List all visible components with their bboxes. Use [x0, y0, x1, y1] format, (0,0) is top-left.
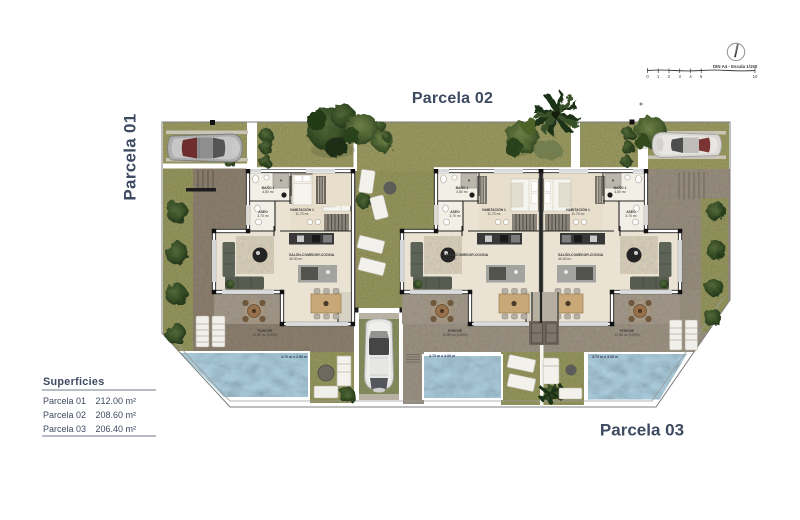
- svg-text:Parcela 01: Parcela 01: [121, 113, 140, 200]
- svg-text:Parcela 02: Parcela 02: [412, 90, 493, 107]
- svg-text:11.70 m²: 11.70 m²: [295, 212, 309, 216]
- svg-text:3.70 m²: 3.70 m²: [449, 214, 461, 218]
- svg-text:4.70 m x 3.00 m: 4.70 m x 3.00 m: [429, 354, 455, 358]
- svg-text:11.70 m²: 11.70 m²: [487, 212, 501, 216]
- svg-text:40.00 m²: 40.00 m²: [289, 257, 303, 261]
- svg-text:10: 10: [753, 74, 758, 79]
- svg-text:4.80 m²: 4.80 m²: [262, 190, 274, 194]
- svg-text:212.00 m²: 212.00 m²: [95, 396, 136, 406]
- svg-text:Parcela 01: Parcela 01: [43, 396, 86, 406]
- svg-text:Superficies: Superficies: [43, 376, 105, 388]
- svg-text:40.00 m²: 40.00 m²: [558, 257, 572, 261]
- svg-text:40.00 m²: 40.00 m²: [443, 257, 457, 261]
- svg-text:4.80 m²: 4.80 m²: [614, 190, 626, 194]
- svg-text:4.80 m²: 4.80 m²: [456, 190, 468, 194]
- svg-text:12.80 m² (100%): 12.80 m² (100%): [252, 333, 277, 337]
- svg-text:Parcela 02: Parcela 02: [43, 410, 86, 420]
- svg-text:3.70 m²: 3.70 m²: [625, 214, 637, 218]
- svg-text:11.70 m²: 11.70 m²: [571, 212, 585, 216]
- svg-text:DIN A4 - Escala 1/150: DIN A4 - Escala 1/150: [713, 64, 758, 69]
- svg-text:3.70 m²: 3.70 m²: [257, 214, 269, 218]
- svg-text:4.70 m x 3.00 m: 4.70 m x 3.00 m: [592, 355, 618, 359]
- svg-text:208.60 m²: 208.60 m²: [95, 410, 136, 420]
- svg-text:Parcela 03: Parcela 03: [43, 424, 86, 434]
- svg-text:4.70 m x 2.90 m: 4.70 m x 2.90 m: [281, 355, 307, 359]
- svg-text:Parcela 03: Parcela 03: [600, 421, 684, 440]
- svg-text:12.80 m² (100%): 12.80 m² (100%): [614, 333, 639, 337]
- svg-text:12.80 m² (100%): 12.80 m² (100%): [442, 333, 467, 337]
- svg-text:206.40 m²: 206.40 m²: [95, 424, 136, 434]
